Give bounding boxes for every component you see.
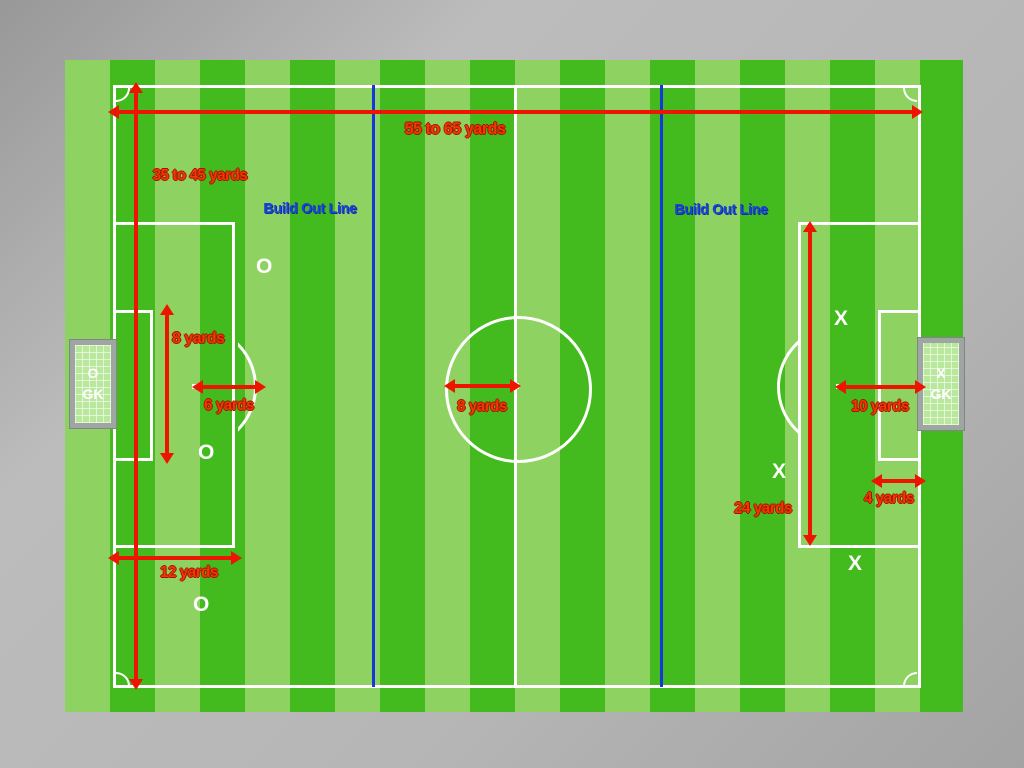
- goal-right-defense-label: X: [936, 363, 945, 384]
- goal-area-height-arrow: [165, 314, 169, 454]
- penalty-spot-right-label: 10 yards: [851, 398, 909, 416]
- offense-player-marker: O: [193, 593, 209, 617]
- penalty-arc-right: [768, 324, 798, 450]
- slide-background: { "diagram": { "measurements": { "field_…: [0, 0, 1024, 768]
- goal-area-depth-arrow: [881, 479, 916, 483]
- penalty-spot-left-arrow: [202, 385, 256, 389]
- build-out-line-label-right: Build Out Line: [674, 201, 767, 218]
- penalty-spot-left-label: 6 yards: [204, 397, 254, 415]
- build-out-line-right: [660, 85, 663, 687]
- goal-left-offense-label: O: [88, 363, 99, 384]
- field-length-arrow: [134, 92, 138, 680]
- goal-left: O GK: [70, 340, 116, 428]
- offense-player-marker: O: [256, 255, 272, 279]
- build-out-line-label-left: Build Out Line: [263, 200, 356, 217]
- center-circle-radius-arrow: [454, 384, 511, 388]
- goal-area-height-label: 8 yards: [172, 330, 225, 348]
- penalty-area-height-arrow: [808, 231, 812, 536]
- penalty-area-width-arrow: [118, 556, 232, 560]
- goal-right-goalkeeper-label: GK: [931, 384, 952, 405]
- defense-player-marker: X: [848, 552, 862, 576]
- center-circle-radius-label: 8 yards: [457, 398, 507, 416]
- field-length-label: 35 to 45 yards: [153, 167, 248, 185]
- defense-player-marker: X: [772, 460, 786, 484]
- defense-player-marker: X: [834, 307, 848, 331]
- penalty-area-height-label: 24 yards: [734, 500, 792, 518]
- field-width-arrow: [118, 110, 913, 114]
- offense-player-marker: O: [198, 441, 214, 465]
- penalty-area-width-label: 12 yards: [160, 564, 218, 582]
- field-width-label: 55 to 65 yards: [404, 119, 505, 139]
- goal-area-depth-label: 4 yards: [864, 490, 914, 508]
- goal-left-goalkeeper-label: GK: [83, 384, 104, 405]
- goal-area-left: [113, 310, 153, 461]
- build-out-line-left: [372, 85, 375, 687]
- penalty-spot-right-arrow: [845, 385, 916, 389]
